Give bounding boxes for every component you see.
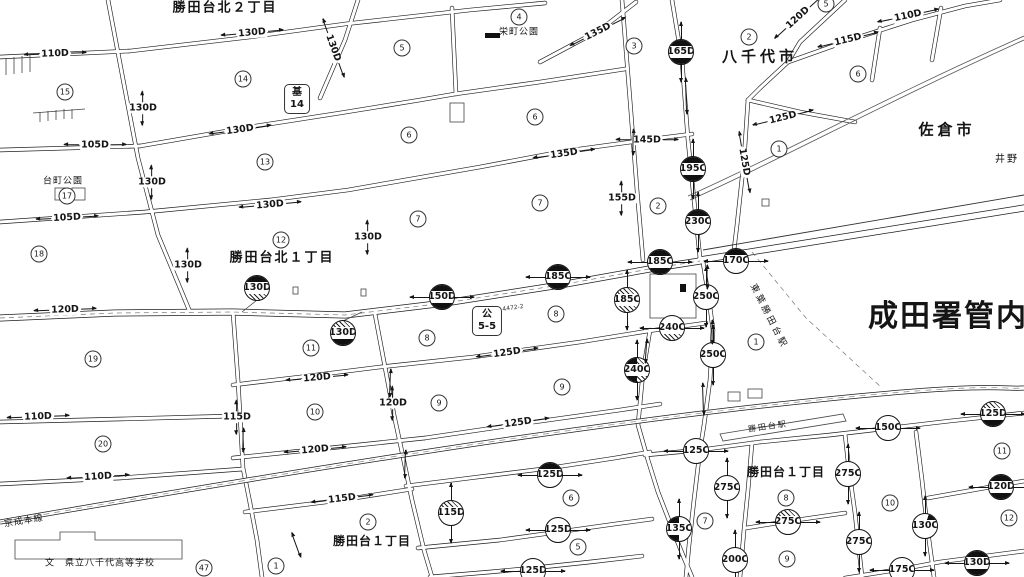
- road-value-label: 130D: [173, 248, 203, 282]
- block-number: 14: [235, 71, 252, 88]
- district-symbol: 125D: [520, 558, 546, 577]
- district-symbol: 185C: [545, 264, 571, 290]
- area-label: 栄町公園: [499, 29, 539, 38]
- district-value: 125D: [545, 524, 571, 536]
- road-value-text: 110D: [83, 471, 113, 482]
- district-circle: 185C: [545, 264, 571, 290]
- road-value-text: 120D: [302, 372, 332, 384]
- district-circle: 125C: [683, 438, 709, 464]
- arrow-icon: [114, 475, 129, 477]
- district-value: 230C: [685, 216, 711, 228]
- district-value: 115D: [438, 507, 464, 519]
- block-number: 8: [778, 490, 795, 507]
- district-symbol: 195C: [680, 156, 706, 182]
- district-symbol: 250C: [700, 342, 726, 368]
- district-symbol: 125D: [980, 401, 1006, 427]
- area-label: 佐倉市: [918, 123, 975, 138]
- arrow-icon: [143, 91, 144, 102]
- district-value: 275C: [835, 468, 861, 480]
- road-value-label: 130D: [137, 165, 167, 199]
- block-number: 1: [771, 141, 788, 158]
- district-circle: 275C: [775, 509, 801, 535]
- area-label: 文 県立八千代高等学校: [45, 560, 155, 569]
- area-label: 井野: [995, 155, 1019, 165]
- district-value: 240C: [624, 364, 650, 376]
- road-arrow: [632, 129, 633, 155]
- district-value: 150C: [875, 422, 901, 434]
- arrow-icon: [368, 220, 369, 231]
- district-circle: 230C: [685, 209, 711, 235]
- district-circle: 150C: [875, 415, 901, 441]
- district-value: 125D: [537, 469, 563, 481]
- area-label: 成田署管内: [868, 302, 1024, 332]
- arrow-icon: [663, 140, 678, 141]
- district-symbol: 125D: [537, 462, 563, 488]
- district-circle: 195C: [680, 156, 706, 182]
- district-circle: 250C: [700, 342, 726, 368]
- district-value: 130C: [912, 520, 938, 532]
- district-circle: 130D: [964, 550, 990, 576]
- arrow-icon: [476, 355, 491, 358]
- arrow-icon: [738, 132, 742, 147]
- area-label: 台町公園: [43, 178, 83, 187]
- district-circle: 165D: [668, 39, 694, 65]
- arrow-icon: [622, 204, 623, 215]
- district-value: 130D: [330, 327, 356, 339]
- area-label: 八千代市: [722, 50, 798, 65]
- arrow-icon: [616, 140, 631, 141]
- district-circle: 125D: [545, 517, 571, 543]
- block-number: 9: [779, 551, 796, 568]
- road-value-label: 115D: [222, 400, 252, 434]
- area-label: 勝田台１丁目: [333, 535, 411, 547]
- district-value: 125D: [520, 565, 546, 577]
- district-symbol: 130D: [330, 320, 356, 346]
- facility-box-line: 14: [290, 99, 304, 111]
- block-number: 2: [360, 514, 377, 531]
- road-value-label: 145D: [616, 135, 678, 145]
- district-value: 165D: [668, 46, 694, 58]
- district-circle: 240C: [659, 315, 685, 341]
- district-symbol: 185C: [647, 249, 673, 275]
- arrow-icon: [622, 181, 623, 192]
- road-arrow: [707, 265, 708, 289]
- arrow-icon: [393, 386, 394, 397]
- district-value: 185C: [647, 256, 673, 268]
- district-symbol: 240C: [659, 315, 685, 341]
- road-value-text: 130D: [128, 103, 158, 113]
- arrow-icon: [188, 248, 189, 259]
- arrow-icon: [81, 308, 96, 310]
- road-value-text: 145D: [632, 135, 662, 145]
- district-circle: 120D: [988, 474, 1014, 500]
- arrow-icon: [111, 145, 126, 146]
- block-number: 8: [548, 306, 565, 323]
- arrow-icon: [7, 417, 22, 419]
- district-value: 170C: [723, 255, 749, 267]
- road-value-text: 105D: [52, 212, 82, 223]
- arrow-icon: [612, 18, 626, 26]
- arrow-icon: [523, 348, 538, 351]
- block-number: 2: [741, 29, 758, 46]
- district-value: 130D: [964, 557, 990, 569]
- arrow-icon: [152, 188, 153, 199]
- arrow-icon: [83, 216, 98, 218]
- block-number: 6: [563, 490, 580, 507]
- district-symbol: 275C: [775, 509, 801, 535]
- block-number: 10: [307, 404, 324, 421]
- arrow-icon: [284, 451, 299, 453]
- district-value: 275C: [714, 482, 740, 494]
- arrow-icon: [333, 375, 348, 377]
- arrow-icon: [239, 206, 254, 208]
- arrow-icon: [67, 477, 82, 479]
- road-value-label: 155D: [607, 181, 637, 215]
- district-symbol: 125C: [683, 438, 709, 464]
- district-circle: 150D: [429, 284, 455, 310]
- road-network: [0, 0, 1024, 577]
- district-symbol: 200C: [722, 547, 748, 573]
- district-value: 275C: [846, 536, 872, 548]
- district-circle: 125D: [537, 462, 563, 488]
- arrow-icon: [487, 425, 502, 428]
- district-symbol: 275C: [835, 461, 861, 487]
- arrow-icon: [143, 114, 144, 125]
- road-value-text: 120D: [300, 444, 330, 456]
- arrow-icon: [188, 271, 189, 282]
- arrow-icon: [534, 418, 549, 421]
- road-value-label: 105D: [64, 140, 126, 150]
- road-value-text: 130D: [173, 260, 203, 270]
- district-value: 120D: [988, 481, 1014, 493]
- district-symbol: 125D: [545, 517, 571, 543]
- district-circle: 275C: [846, 529, 872, 555]
- road-value-text: 130D: [255, 199, 285, 211]
- district-circle: 275C: [714, 475, 740, 501]
- block-number: 3: [626, 38, 643, 55]
- road-value-text: 110D: [40, 49, 70, 60]
- district-value: 130D: [244, 282, 270, 294]
- district-symbol: 135C: [666, 516, 692, 542]
- arrow-icon: [54, 415, 69, 417]
- block-number: 2: [650, 198, 667, 215]
- road-value-text: 130D: [137, 177, 167, 187]
- arrow-icon: [746, 178, 750, 193]
- block-number: 18: [31, 246, 48, 263]
- arrow-icon: [268, 30, 283, 32]
- arrow-icon: [393, 409, 394, 420]
- district-circle: 200C: [722, 547, 748, 573]
- district-symbol: 185C: [614, 287, 640, 313]
- arrow-icon: [570, 39, 584, 47]
- arrow-icon: [358, 495, 373, 498]
- district-value: 200C: [722, 554, 748, 566]
- area-label: 勝田台１丁目: [747, 466, 825, 478]
- facility-box-line: 公: [478, 309, 496, 321]
- block-number: 19: [85, 351, 102, 368]
- district-circle: 130D: [330, 320, 356, 346]
- arrow-icon: [64, 145, 79, 146]
- district-circle: 130C: [912, 513, 938, 539]
- arrow-icon: [322, 19, 328, 33]
- block-number: 9: [554, 379, 571, 396]
- district-circle: 115D: [438, 500, 464, 526]
- district-symbol: 150C: [875, 415, 901, 441]
- block-number: 1: [268, 558, 285, 575]
- district-symbol: 115D: [438, 500, 464, 526]
- block-number: 17: [59, 188, 76, 205]
- arrow-icon: [256, 125, 271, 128]
- road-value-text: 115D: [222, 412, 252, 422]
- district-circle: 170C: [723, 248, 749, 274]
- arrow-icon: [818, 43, 833, 48]
- area-label: 勝田台北１丁目: [229, 252, 334, 265]
- block-number: 15: [57, 84, 74, 101]
- district-value: 250C: [700, 349, 726, 361]
- district-value: 125C: [683, 445, 709, 457]
- district-value: 250C: [693, 291, 719, 303]
- arrow-icon: [36, 218, 51, 220]
- block-number: 7: [532, 195, 549, 212]
- arrow-icon: [331, 447, 346, 449]
- facility-box-line: 5-5: [478, 321, 496, 333]
- block-number: 20: [95, 436, 112, 453]
- district-circle: 185C: [614, 287, 640, 313]
- block-number: 47: [196, 560, 213, 577]
- district-circle: 275C: [835, 461, 861, 487]
- district-circle: 125D: [980, 401, 1006, 427]
- arrow-icon: [237, 423, 238, 434]
- block-number: 6: [401, 127, 418, 144]
- road-value-label: 120D: [378, 386, 408, 420]
- block-number: 10: [882, 495, 899, 512]
- district-circle: 125D: [520, 558, 546, 577]
- district-value: 195C: [680, 163, 706, 175]
- arrow-icon: [753, 121, 768, 126]
- road-arrow: [712, 320, 713, 344]
- road-arrow: [242, 428, 243, 452]
- arrow-icon: [863, 32, 878, 37]
- district-value: 125D: [980, 408, 1006, 420]
- block-number: 9: [431, 395, 448, 412]
- block-number: 12: [1001, 510, 1018, 527]
- map-base-roads: [0, 0, 1024, 577]
- district-value: 240C: [659, 322, 685, 334]
- district-symbol: 130D: [964, 550, 990, 576]
- road-value-text: 105D: [80, 140, 110, 150]
- arrow-icon: [24, 54, 39, 56]
- arrow-icon: [580, 149, 595, 152]
- facility-box-line: 基: [290, 87, 304, 99]
- district-value: 150D: [429, 291, 455, 303]
- facility-box: 公5-5: [472, 306, 502, 336]
- arrow-icon: [286, 202, 301, 204]
- arrow-icon: [237, 400, 238, 411]
- district-circle: 175C: [889, 557, 915, 577]
- district-symbol: 120D: [988, 474, 1014, 500]
- rosenka-map: 110D130D130D105D130D130D130D105D130D130D…: [0, 0, 1024, 577]
- arrow-icon: [34, 310, 49, 312]
- district-symbol: 275C: [714, 475, 740, 501]
- arrow-icon: [878, 19, 893, 23]
- road-value-text: 120D: [378, 398, 408, 408]
- area-label: 勝田台北２丁目: [172, 2, 277, 15]
- district-circle: 185C: [647, 249, 673, 275]
- block-number: 7: [410, 211, 427, 228]
- district-symbol: 275C: [846, 529, 872, 555]
- district-symbol: 175C: [889, 557, 915, 577]
- block-number: 7: [697, 513, 714, 530]
- road-value-label: 130D: [353, 220, 383, 254]
- district-value: 275C: [775, 516, 801, 528]
- district-value: 185C: [614, 294, 640, 306]
- district-symbol: 230C: [685, 209, 711, 235]
- arrow-icon: [152, 165, 153, 176]
- arrow-icon: [798, 110, 813, 115]
- arrow-icon: [923, 9, 938, 13]
- road-value-text: 155D: [607, 193, 637, 203]
- arrow-icon: [209, 132, 224, 135]
- district-value: 135C: [666, 523, 692, 535]
- arrow-icon: [71, 52, 86, 54]
- block-number: 6: [850, 66, 867, 83]
- district-symbol: 150D: [429, 284, 455, 310]
- district-value: 185C: [545, 271, 571, 283]
- road-value-text: 130D: [237, 27, 267, 39]
- block-number: 6: [527, 109, 544, 126]
- facility-box: 基14: [284, 84, 310, 114]
- arrow-icon: [221, 34, 236, 36]
- district-symbol: 170C: [723, 248, 749, 274]
- district-symbol: 165D: [668, 39, 694, 65]
- block-number: 1: [748, 334, 765, 351]
- block-number: 8: [419, 330, 436, 347]
- block-number: 12: [273, 232, 290, 249]
- district-symbol: 130C: [912, 513, 938, 539]
- arrow-icon: [533, 156, 548, 159]
- block-number: 13: [257, 154, 274, 171]
- arrow-icon: [311, 500, 326, 503]
- road-value-label: 130D: [128, 91, 158, 125]
- block-number: 11: [994, 443, 1011, 460]
- arrow-icon: [286, 379, 301, 381]
- district-circle: 130D: [244, 275, 270, 301]
- road-value-text: 120D: [50, 305, 80, 316]
- district-circle: 135C: [666, 516, 692, 542]
- block-number: 4: [511, 9, 528, 26]
- district-value: 175C: [889, 564, 915, 576]
- block-number: 5: [570, 539, 587, 556]
- road-value-text: 110D: [23, 412, 53, 423]
- block-number: 11: [303, 340, 320, 357]
- block-number: 5: [394, 40, 411, 57]
- district-symbol: 130D: [244, 275, 270, 301]
- arrow-icon: [338, 63, 344, 77]
- road-value-text: 130D: [353, 232, 383, 242]
- arrow-icon: [368, 243, 369, 254]
